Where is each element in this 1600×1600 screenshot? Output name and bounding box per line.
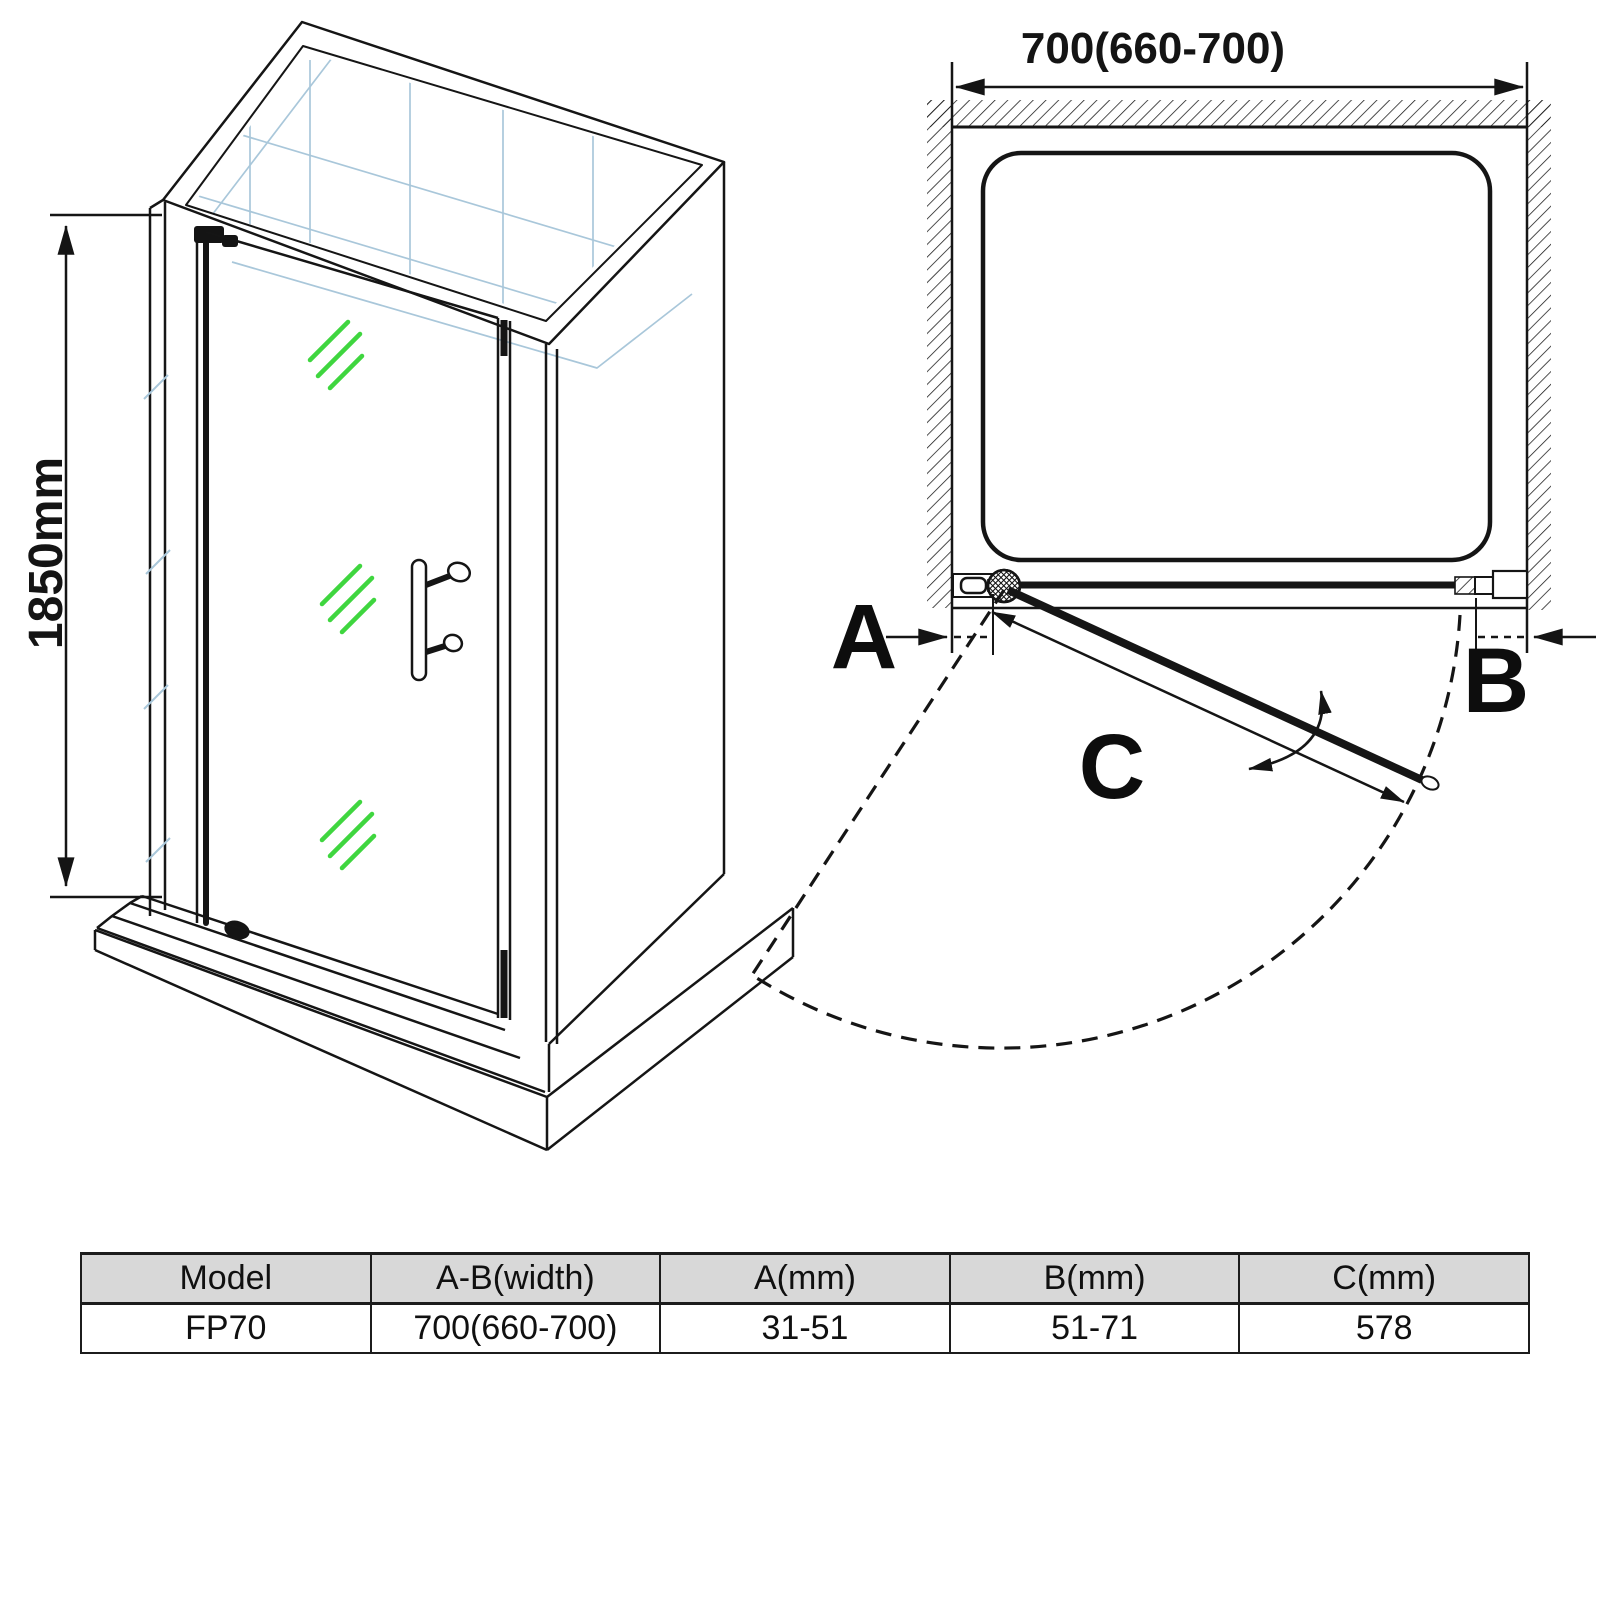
cell-model: FP70 — [81, 1304, 371, 1354]
door-handle — [412, 560, 472, 680]
shower-tray-base — [95, 896, 793, 1150]
dimension-c-arrow — [992, 612, 1404, 802]
col-ab-width: A-B(width) — [371, 1254, 661, 1304]
plan-view: 700(660-700) — [752, 24, 1596, 1048]
spec-table-header-row: Model A-B(width) A(mm) B(mm) C(mm) — [81, 1254, 1529, 1304]
col-model: Model — [81, 1254, 371, 1304]
product-diagram-page: 1850mm 700(660-700) — [0, 0, 1600, 1600]
wall-hatching — [927, 100, 1551, 610]
dimension-a-label: A — [831, 586, 897, 688]
technical-diagram-svg: 1850mm 700(660-700) — [0, 0, 1600, 1600]
tile-floor-joint — [232, 262, 692, 368]
cell-b-mm: 51-71 — [950, 1304, 1240, 1354]
col-a-mm: A(mm) — [660, 1254, 950, 1304]
hinge-assembly — [953, 570, 1020, 602]
col-c-mm: C(mm) — [1239, 1254, 1529, 1304]
cell-c-mm: 578 — [1239, 1304, 1529, 1354]
handle-bar — [412, 560, 426, 680]
width-dimension-label: 700(660-700) — [1021, 24, 1285, 73]
glass-reflection-marks — [310, 322, 374, 868]
spec-table-row: FP70 700(660-700) 31-51 51-71 578 — [81, 1304, 1529, 1354]
isometric-view: 1850mm — [20, 22, 793, 1150]
magnet-profile — [1455, 571, 1527, 598]
height-dimension-label: 1850mm — [20, 457, 73, 649]
cell-a-mm: 31-51 — [660, 1304, 950, 1354]
spec-table: Model A-B(width) A(mm) B(mm) C(mm) FP70 … — [80, 1252, 1530, 1354]
dimension-b-label: B — [1463, 630, 1529, 732]
col-b-mm: B(mm) — [950, 1254, 1240, 1304]
dimension-c-label: C — [1079, 716, 1145, 818]
top-hinge-bracket — [194, 226, 224, 243]
tile-grid — [185, 58, 700, 420]
cell-ab-width: 700(660-700) — [371, 1304, 661, 1354]
door-open — [1008, 590, 1441, 792]
shower-tray-outline — [983, 153, 1490, 560]
handle-knob-bottom — [442, 632, 464, 653]
handle-knob-top — [446, 560, 473, 584]
door-open-line — [1008, 590, 1422, 780]
